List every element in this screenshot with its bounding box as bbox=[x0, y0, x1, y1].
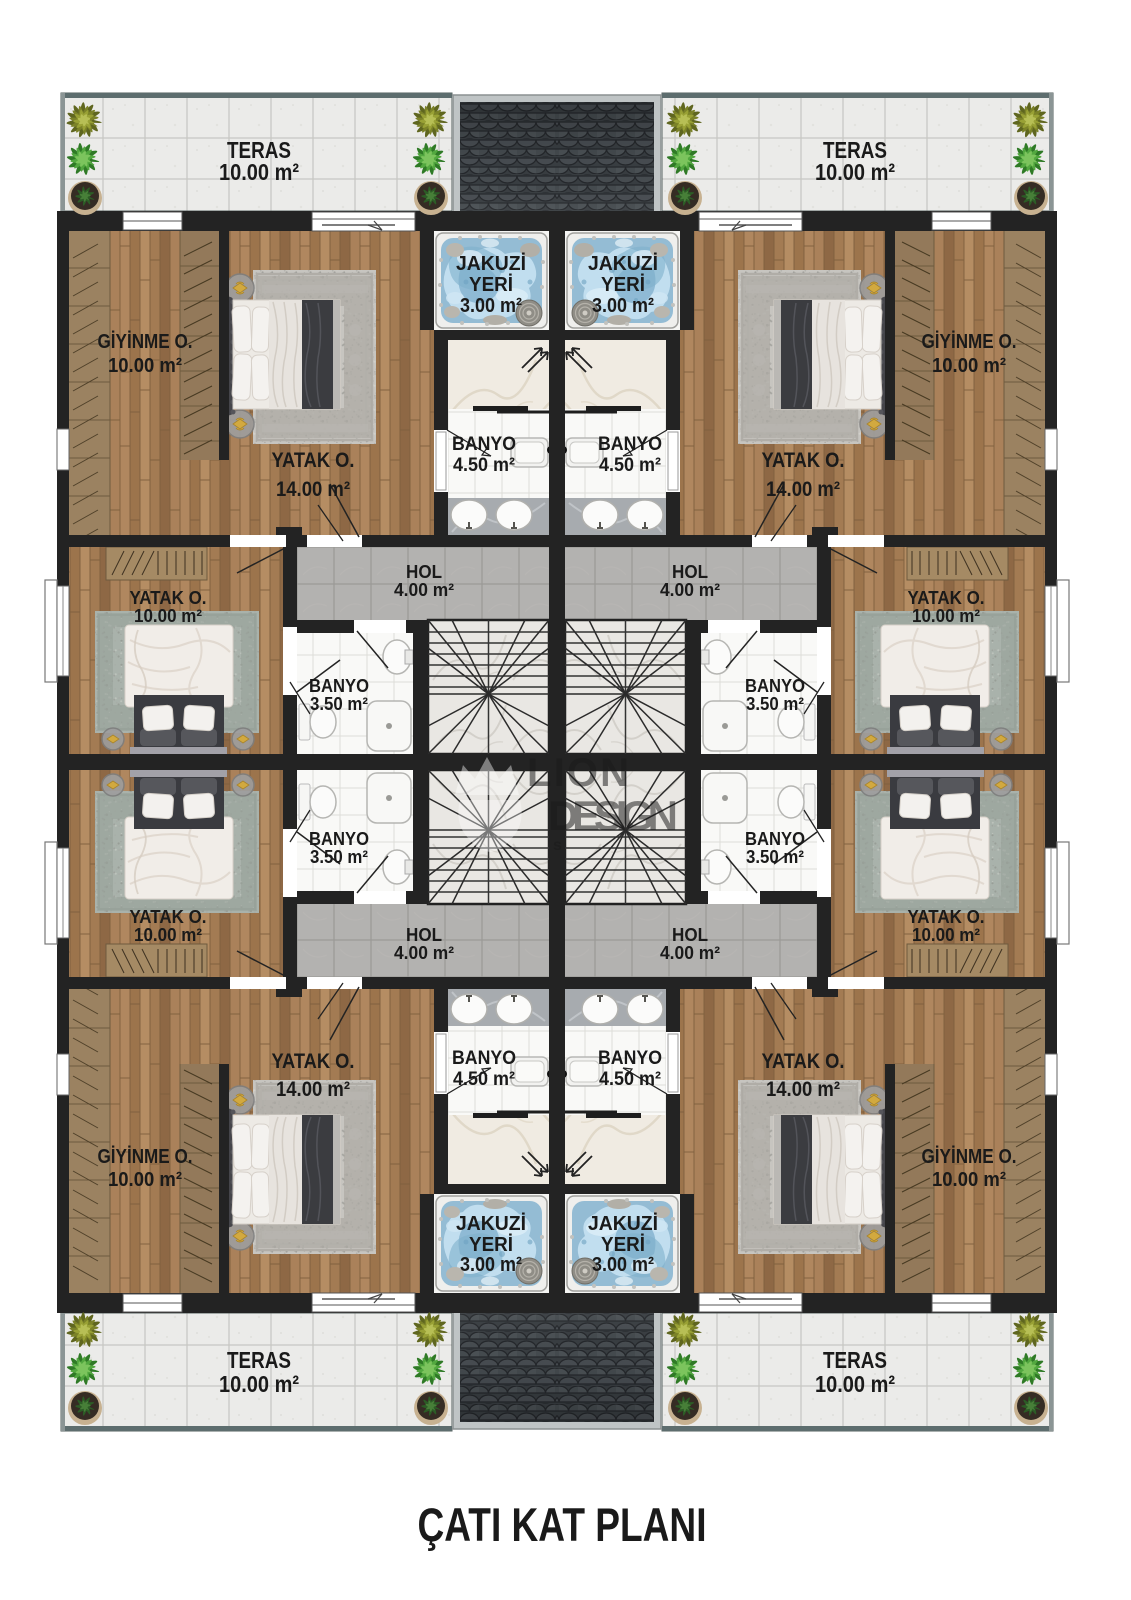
svg-text:YATAK O.: YATAK O. bbox=[762, 449, 845, 472]
svg-text:10.00 m²: 10.00 m² bbox=[815, 1371, 895, 1397]
svg-text:10.00 m²: 10.00 m² bbox=[912, 606, 980, 626]
svg-text:BANYO: BANYO bbox=[745, 829, 805, 849]
svg-text:JAKUZİ: JAKUZİ bbox=[456, 1212, 526, 1235]
svg-text:YERİ: YERİ bbox=[469, 1233, 513, 1256]
svg-text:10.00 m²: 10.00 m² bbox=[219, 1371, 299, 1397]
svg-text:YERİ: YERİ bbox=[601, 1233, 645, 1256]
svg-text:JAKUZİ: JAKUZİ bbox=[456, 252, 526, 275]
svg-text:3.00 m²: 3.00 m² bbox=[460, 1254, 522, 1276]
svg-text:10.00 m²: 10.00 m² bbox=[108, 355, 182, 377]
svg-text:JAKUZİ: JAKUZİ bbox=[588, 252, 658, 275]
svg-text:DESIGN: DESIGN bbox=[548, 792, 680, 839]
svg-text:4.50 m²: 4.50 m² bbox=[599, 455, 661, 476]
svg-text:4.00 m²: 4.00 m² bbox=[660, 580, 720, 600]
svg-text:BANYO: BANYO bbox=[309, 676, 369, 696]
svg-text:TERAS: TERAS bbox=[823, 1347, 887, 1373]
svg-text:14.00 m²: 14.00 m² bbox=[766, 478, 840, 501]
svg-text:10.00 m²: 10.00 m² bbox=[219, 159, 299, 185]
svg-text:4.50 m²: 4.50 m² bbox=[453, 1069, 515, 1090]
svg-text:YATAK O.: YATAK O. bbox=[762, 1050, 845, 1073]
svg-text:LION: LION bbox=[527, 751, 633, 795]
svg-text:3.00 m²: 3.00 m² bbox=[592, 1254, 654, 1276]
svg-text:4.00 m²: 4.00 m² bbox=[394, 943, 454, 963]
svg-text:JAKUZİ: JAKUZİ bbox=[588, 1212, 658, 1235]
svg-text:4.50 m²: 4.50 m² bbox=[599, 1069, 661, 1090]
svg-text:4.00 m²: 4.00 m² bbox=[660, 943, 720, 963]
svg-text:BANYO: BANYO bbox=[452, 434, 516, 455]
svg-text:10.00 m²: 10.00 m² bbox=[912, 925, 980, 945]
svg-text:BANYO: BANYO bbox=[598, 1048, 662, 1069]
svg-text:TERAS: TERAS bbox=[227, 1347, 291, 1373]
svg-text:4.00 m²: 4.00 m² bbox=[394, 580, 454, 600]
svg-text:s: s bbox=[553, 837, 562, 854]
svg-text:ÇATI KAT PLANI: ÇATI KAT PLANI bbox=[418, 1498, 707, 1551]
svg-text:4.50 m²: 4.50 m² bbox=[453, 455, 515, 476]
svg-text:BANYO: BANYO bbox=[745, 676, 805, 696]
svg-text:14.00 m²: 14.00 m² bbox=[766, 1078, 840, 1101]
svg-text:YATAK O.: YATAK O. bbox=[130, 907, 207, 927]
svg-text:GİYİNME O.: GİYİNME O. bbox=[98, 330, 193, 353]
svg-text:3.50 m²: 3.50 m² bbox=[310, 694, 368, 714]
svg-text:10.00 m²: 10.00 m² bbox=[134, 925, 202, 945]
svg-text:GİYİNME O.: GİYİNME O. bbox=[922, 330, 1017, 353]
svg-text:YATAK O.: YATAK O. bbox=[130, 588, 207, 608]
svg-text:10.00 m²: 10.00 m² bbox=[815, 159, 895, 185]
svg-text:HOL: HOL bbox=[406, 562, 442, 582]
svg-text:3.50 m²: 3.50 m² bbox=[746, 847, 804, 867]
svg-text:10.00 m²: 10.00 m² bbox=[108, 1169, 182, 1191]
svg-text:GİYİNME O.: GİYİNME O. bbox=[922, 1145, 1017, 1168]
svg-text:BANYO: BANYO bbox=[309, 829, 369, 849]
svg-text:YERİ: YERİ bbox=[601, 273, 645, 296]
svg-text:10.00 m²: 10.00 m² bbox=[932, 355, 1006, 377]
svg-text:3.00 m²: 3.00 m² bbox=[592, 295, 654, 317]
svg-text:YERİ: YERİ bbox=[469, 273, 513, 296]
svg-text:HOL: HOL bbox=[672, 925, 708, 945]
svg-text:3.00 m²: 3.00 m² bbox=[460, 295, 522, 317]
svg-text:14.00 m²: 14.00 m² bbox=[276, 478, 350, 501]
svg-text:HOL: HOL bbox=[672, 562, 708, 582]
svg-text:GİYİNME O.: GİYİNME O. bbox=[98, 1145, 193, 1168]
svg-text:YATAK O.: YATAK O. bbox=[908, 907, 985, 927]
svg-text:3.50 m²: 3.50 m² bbox=[310, 847, 368, 867]
svg-text:3.50 m²: 3.50 m² bbox=[746, 694, 804, 714]
svg-text:14.00 m²: 14.00 m² bbox=[276, 1078, 350, 1101]
svg-text:BANYO: BANYO bbox=[598, 434, 662, 455]
svg-text:YATAK O.: YATAK O. bbox=[908, 588, 985, 608]
svg-text:10.00 m²: 10.00 m² bbox=[932, 1169, 1006, 1191]
svg-text:HOL: HOL bbox=[406, 925, 442, 945]
svg-text:YATAK O.: YATAK O. bbox=[272, 449, 355, 472]
svg-text:10.00 m²: 10.00 m² bbox=[134, 606, 202, 626]
svg-text:BANYO: BANYO bbox=[452, 1048, 516, 1069]
svg-text:YATAK O.: YATAK O. bbox=[272, 1050, 355, 1073]
